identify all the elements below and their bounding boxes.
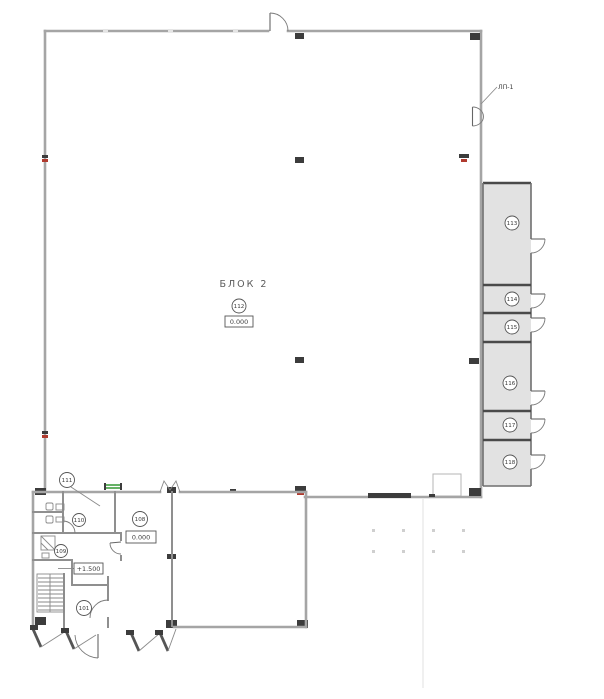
fire-ladder-label: ЛП-1 — [498, 84, 514, 91]
room-113-label: 113 — [505, 216, 519, 230]
floor-plan-page: ЛП-1 113 — [0, 0, 604, 699]
room-110-number: 110 — [74, 518, 85, 524]
green-hatch-marker — [104, 483, 122, 490]
room-116-label: 116 — [503, 376, 517, 390]
main-hall-labels: БЛОК 2 112 0.000 — [220, 279, 269, 327]
room-112-number: 112 — [234, 304, 245, 310]
right-room-strip: 113 114 115 116 117 118 — [483, 183, 545, 486]
annex-labels: 111 110 109 108 0.000 +1.500 101 — [55, 473, 157, 616]
room-111-number: 111 — [62, 478, 73, 484]
entrance-door — [75, 634, 98, 658]
room-118-label: 118 — [503, 455, 517, 469]
room-114-number: 114 — [507, 297, 518, 303]
room-115-number: 115 — [507, 325, 518, 331]
room-116-number: 116 — [505, 381, 516, 387]
block-title: БЛОК 2 — [220, 279, 269, 290]
main-hall-walls — [45, 31, 481, 497]
room-117-number: 117 — [505, 423, 516, 429]
fire-ladder-symbol: ЛП-1 — [473, 84, 514, 126]
annex-doors — [63, 481, 180, 618]
column-markers — [35, 33, 481, 628]
room-109-number: 109 — [56, 549, 67, 555]
exterior-canopy-lines — [372, 474, 465, 688]
room-115-label: 115 — [505, 320, 519, 334]
storefront-glazing — [30, 625, 176, 658]
room-114-label: 114 — [505, 292, 519, 306]
room-118-number: 118 — [505, 460, 516, 466]
room-117-label: 117 — [503, 418, 517, 432]
room-113-number: 113 — [507, 221, 518, 227]
room-101-number: 101 — [79, 606, 90, 612]
staircase — [37, 574, 64, 612]
gate-slab — [368, 493, 411, 498]
annex-elevation: 0.000 — [132, 534, 150, 542]
annex-walls — [33, 492, 306, 629]
room-108-number: 108 — [135, 517, 146, 523]
floor-plan-drawing: ЛП-1 113 — [0, 0, 604, 699]
strip-room-doors — [531, 239, 545, 469]
entry-elevation: +1.500 — [77, 565, 101, 573]
main-elevation: 0.000 — [230, 318, 248, 326]
top-wall-door — [270, 13, 288, 31]
